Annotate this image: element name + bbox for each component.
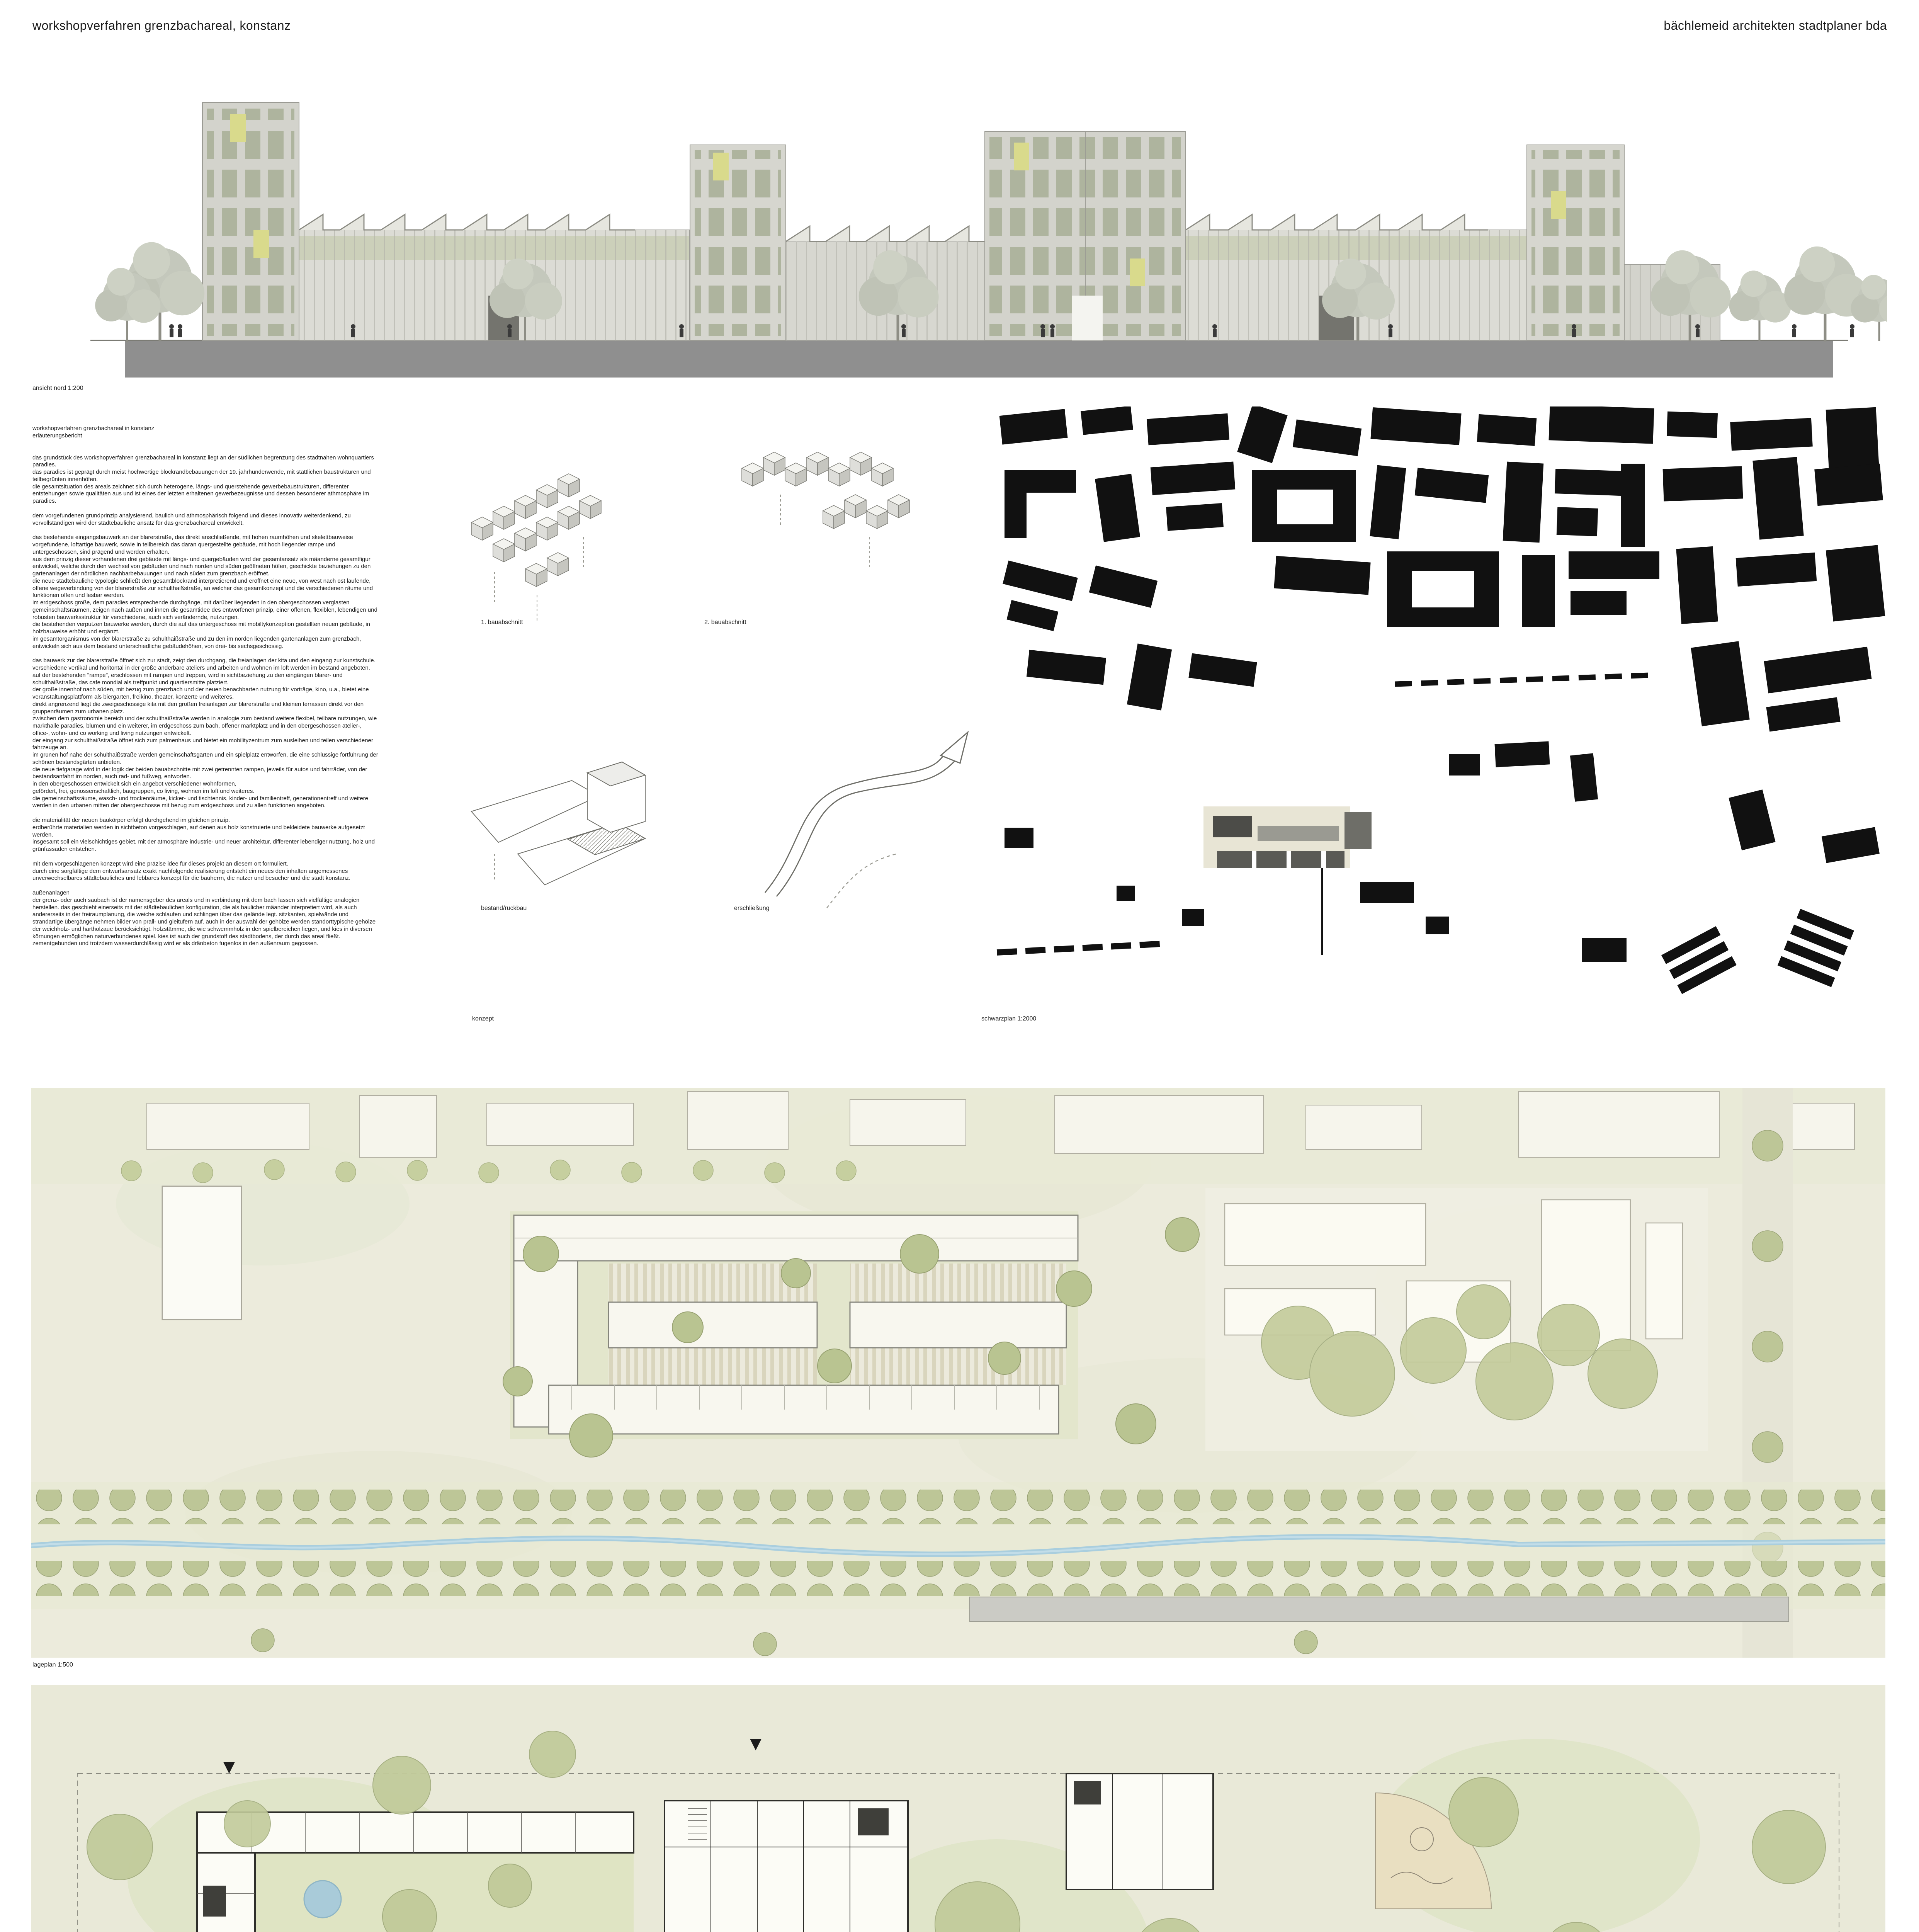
board-title-right: bächlemeid architekten stadtplaner bda [1664,19,1887,33]
report-paragraph: verschiedene vertikal und horitontal in … [32,665,380,672]
report-paragraph: der große innenhof nach süden, mit bezug… [32,686,380,701]
figure-elevation-north [32,48,1887,383]
report-paragraph: zwischen dem gastronomie bereich und der… [32,715,380,737]
caption-lageplan: lageplan 1:500 [32,1662,73,1668]
report-paragraph: die bestehenden verputzen bauwerke werde… [32,621,380,636]
elevation-tower-2 [690,145,786,340]
elevation-shed-row-1 [299,214,689,340]
concept-diagrams-drawing [456,437,974,1009]
figure-lageplan [31,1088,1885,1658]
report-paragraph: die neue tiefgarage wird in der logik de… [32,766,380,781]
lageplan-drawing [31,1088,1885,1658]
report-paragraph: das paradies ist geprägt durch meist hoc… [32,469,380,483]
schwarzplan-blocks [997,406,1885,994]
erdgeschoss-left-complex [197,1801,634,1932]
caption-konzept: konzept [472,1015,494,1022]
erdgeschoss-center-block [665,1801,908,1932]
schwarzplan-drawing [981,406,1887,1014]
erdgeschoss-upper-block [1066,1774,1213,1889]
report-paragraph: im erdgeschoss große, dem paradies entsp… [32,599,380,621]
report-text: workshopverfahren grenzbachareal in kons… [32,425,380,947]
report-paragraph: auf der bestehenden "rampe", erschlossen… [32,672,380,687]
report-paragraph: die gesamtsituation des areals zeichnet … [32,483,380,505]
report-paragraph: mit dem vorgeschlagenen konzept wird ein… [32,861,380,868]
elevation-ground-band [125,340,1833,378]
lageplan-rail-platform [970,1597,1789,1622]
diagram-bauabschnitt-2 [742,452,909,568]
report-paragraph: außenanlagen [32,889,380,897]
elevation-north-drawing [32,48,1887,383]
report-paragraph: der grenz- oder auch saubach ist der nam… [32,897,380,947]
report-paragraph: dem vorgefundenen grundprinzip analysier… [32,512,380,527]
elevation-tower-4 [1527,145,1624,340]
report-paragraph: die neue städtebauliche typologie schlie… [32,578,380,599]
report-paragraph [32,505,380,512]
lageplan-stream-corridor [31,1482,1885,1622]
report-paragraph: die gemeinschaftsräume, wasch- und trock… [32,795,380,810]
caption-bauabschnitt-2: 2. bauabschnitt [704,619,746,626]
report-paragraph: das grundstück des workshopverfahren gre… [32,454,380,469]
lageplan-existing-building-west [162,1186,241,1320]
report-paragraph [32,882,380,889]
caption-erschliessung: erschließung [734,905,770,912]
schwarzplan-site-area [1203,806,1372,868]
figure-concept-diagrams [456,437,974,1009]
competition-board: workshopverfahren grenzbachareal, konsta… [0,0,1919,1932]
report-paragraph: aus dem prinzig dieser vorhandenen drei … [32,556,380,578]
erdgeschoss-drawing [31,1685,1885,1932]
report-paragraph [32,527,380,534]
report-title-line2: erläuterungsbericht [32,432,380,440]
elevation-tower-3 [985,131,1186,340]
caption-schwarzplan: schwarzplan 1:2000 [981,1015,1036,1022]
report-paragraph: das bestehende eingangsbauwerk an der bl… [32,534,380,556]
lageplan-east-area [1205,1188,1708,1451]
report-paragraphs: das grundstück des workshopverfahren gre… [32,454,380,948]
caption-bauabschnitt-1: 1. bauabschnitt [481,619,523,626]
diagram-bauabschnitt-1 [471,474,601,622]
report-paragraph: die materialität der neuen baukörper erf… [32,817,380,824]
figure-schwarzplan [981,406,1887,1014]
report-paragraph: im grünen hof nahe der schulthaißstraße … [32,752,380,766]
report-paragraph: der eingang zur schulthaißstraße öffnet … [32,737,380,752]
report-paragraph: durch eine sorgfältige dem entwurfsansat… [32,868,380,883]
figure-erdgeschoss [31,1685,1885,1932]
report-paragraph [32,810,380,817]
report-paragraph: gefördert, frei, genossenschaftlich, bau… [32,788,380,795]
erdgeschoss-pond [304,1881,341,1918]
caption-elevation-north: ansicht nord 1:200 [32,385,83,392]
report-paragraph [32,853,380,861]
caption-bestand-rueckbau: bestand/rückbau [481,905,527,912]
elevation-tower-1 [202,102,299,340]
report-title-line1: workshopverfahren grenzbachareal in kons… [32,425,380,432]
report-paragraph [32,650,380,657]
report-paragraph: das bauwerk zur der blarerstraße öffnet … [32,657,380,665]
diagram-bestand-rueckbau [471,762,645,885]
board-title-left: workshopverfahren grenzbachareal, konsta… [32,19,291,33]
diagram-erschliessung [765,732,968,908]
report-paragraph: erdberührte materialien werden in sichtb… [32,824,380,839]
report-paragraph: in den obergeschossen entwickelt sich ei… [32,781,380,788]
report-paragraph: im gesamtorganismus von der blarerstraße… [32,636,380,650]
report-paragraph: direkt angrenzend liegt die zweigeschoss… [32,701,380,716]
report-paragraph: insgesamt soll ein vielschichtiges gebie… [32,838,380,853]
